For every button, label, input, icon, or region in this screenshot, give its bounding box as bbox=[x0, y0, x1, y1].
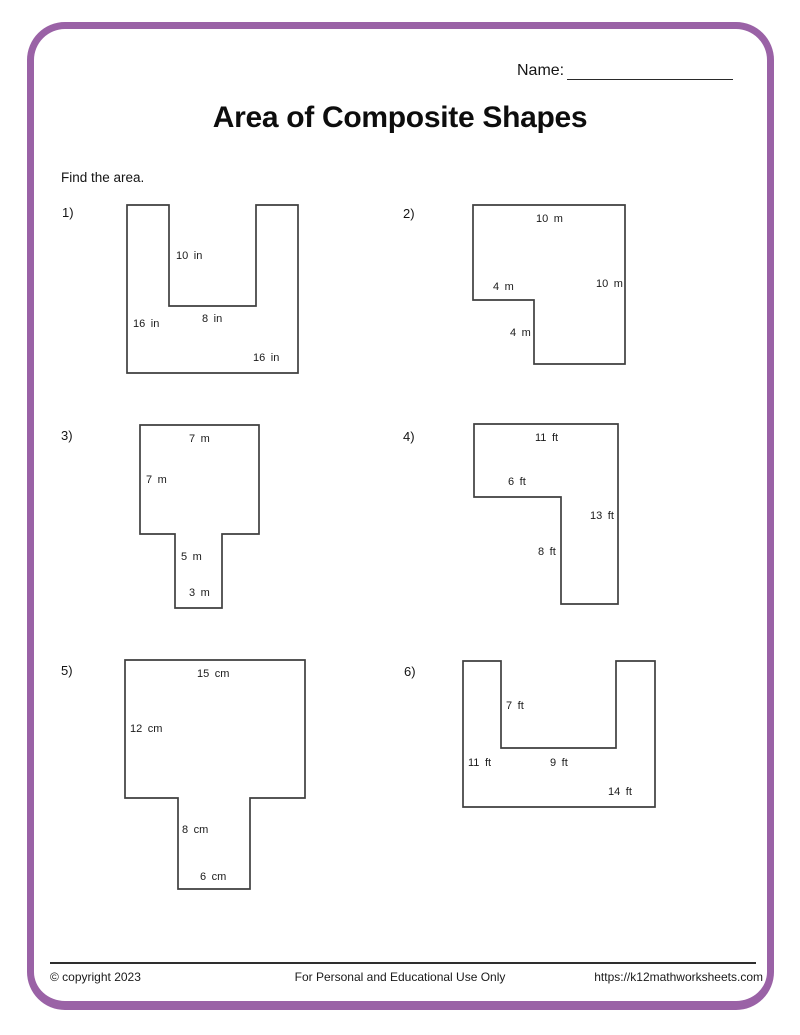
dimension-label: 13 ft bbox=[590, 510, 614, 522]
dimension-label: 12 cm bbox=[130, 723, 162, 735]
instruction-text: Find the area. bbox=[61, 170, 144, 185]
dimension-label: 6 cm bbox=[200, 871, 226, 883]
name-label: Name: bbox=[517, 62, 564, 80]
name-blank-line bbox=[567, 64, 733, 80]
dimension-label: 8 in bbox=[202, 313, 222, 325]
dimension-label: 8 cm bbox=[182, 824, 208, 836]
dimension-label: 15 cm bbox=[197, 668, 229, 680]
problem-number-3: 3) bbox=[61, 428, 73, 443]
dimension-label: 7 m bbox=[146, 474, 167, 486]
problem-number-4: 4) bbox=[403, 429, 415, 444]
dimension-label: 16 in bbox=[133, 318, 159, 330]
problem-number-2: 2) bbox=[403, 206, 415, 221]
dimension-label: 4 m bbox=[510, 327, 531, 339]
footer-divider bbox=[50, 962, 756, 964]
dimension-label: 3 m bbox=[189, 587, 210, 599]
dimension-label: 10 m bbox=[536, 213, 563, 225]
problem-number-5: 5) bbox=[61, 663, 73, 678]
dimension-label: 10 in bbox=[176, 250, 202, 262]
dimension-label: 4 m bbox=[493, 281, 514, 293]
dimension-label: 11 ft bbox=[468, 757, 491, 769]
t-shape-figure-5 bbox=[123, 658, 307, 891]
dimension-label: 8 ft bbox=[538, 546, 556, 558]
dimension-label: 5 m bbox=[181, 551, 202, 563]
dimension-label: 6 ft bbox=[508, 476, 526, 488]
u-shape-figure-1 bbox=[125, 203, 300, 375]
dimension-label: 10 m bbox=[596, 278, 623, 290]
worksheet-title: Area of Composite Shapes bbox=[0, 101, 800, 135]
problem-number-6: 6) bbox=[404, 664, 416, 679]
dimension-label: 7 m bbox=[189, 433, 210, 445]
dimension-label: 7 ft bbox=[506, 700, 524, 712]
dimension-label: 14 ft bbox=[608, 786, 632, 798]
dimension-label: 16 in bbox=[253, 352, 279, 364]
problem-number-1: 1) bbox=[62, 205, 74, 220]
name-row: Name: bbox=[517, 62, 733, 80]
dimension-label: 9 ft bbox=[550, 757, 568, 769]
t-shape-figure-3 bbox=[138, 423, 261, 610]
dimension-label: 11 ft bbox=[535, 432, 558, 444]
footer-website: https://k12mathworksheets.com bbox=[594, 970, 763, 984]
